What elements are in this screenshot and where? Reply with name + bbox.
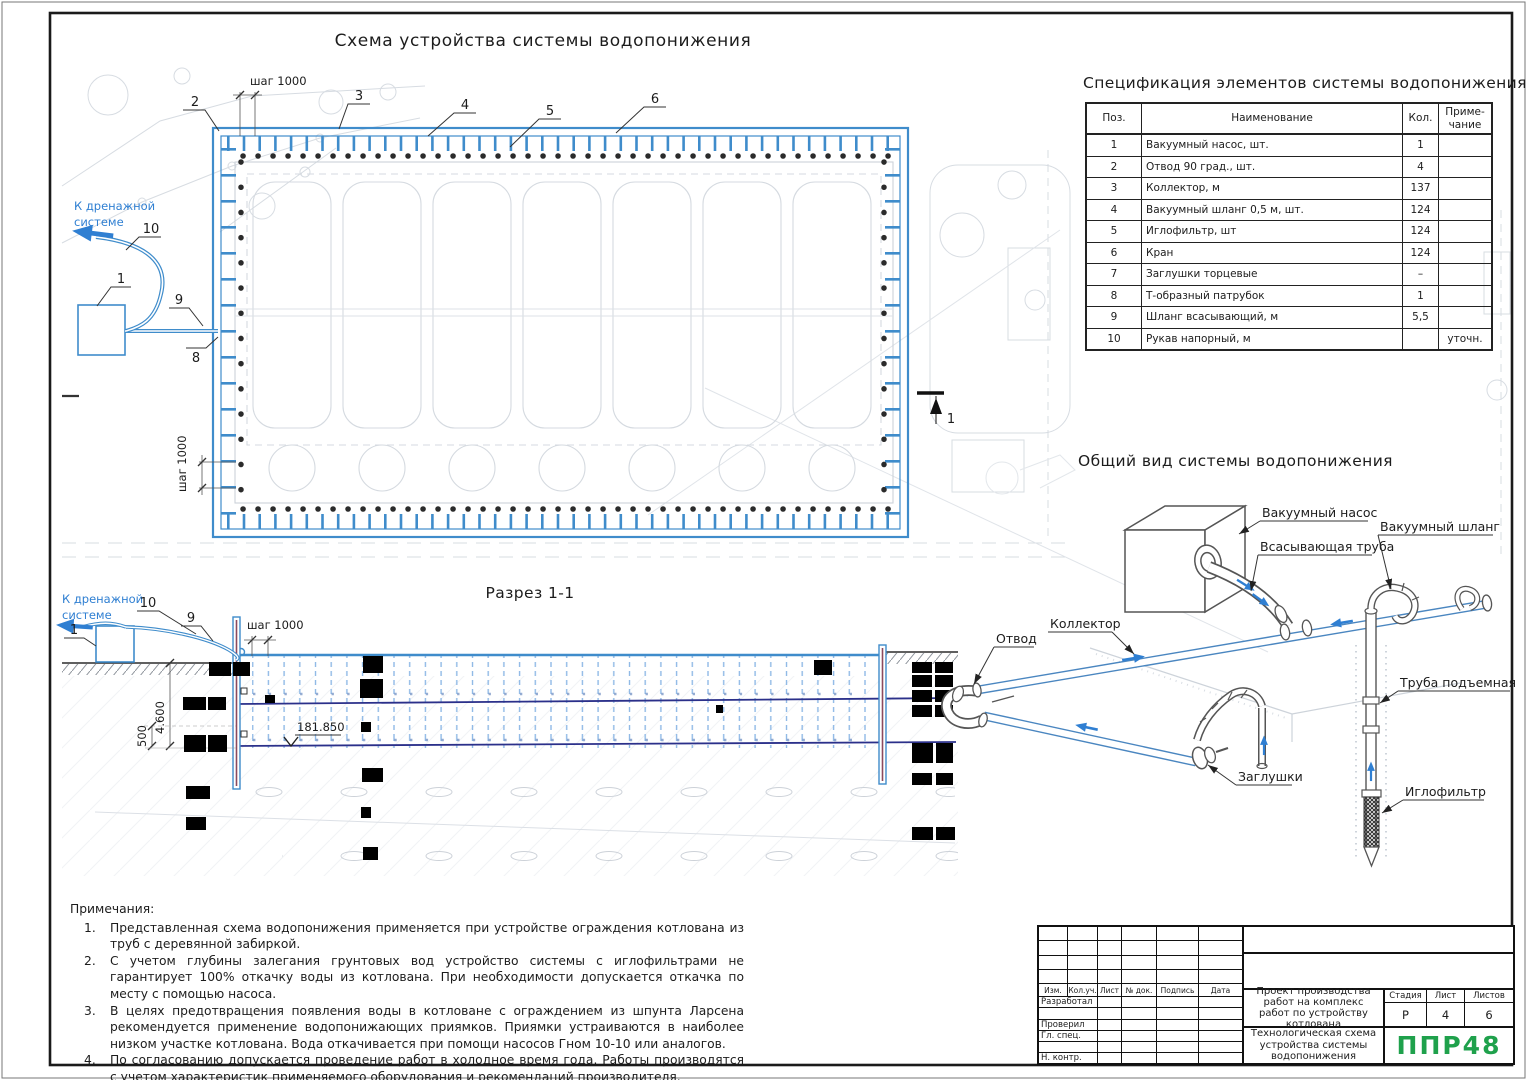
table-row: 10Рукав напорный, муточн. [1086, 328, 1492, 350]
cell-name: Заглушки торцевые [1142, 264, 1403, 286]
row-ncontrol: Н. контр. [1039, 1053, 1098, 1064]
label-otvod: Отвод [996, 631, 1037, 646]
row-checked: Проверил [1039, 1020, 1098, 1031]
plan-callouts: 2 3 4 5 6 9 8 10 1 [97, 89, 666, 366]
sheet-value: 4 [1427, 1003, 1465, 1026]
level-label: 181.850 [297, 720, 345, 734]
col-ndok: № док. [1122, 984, 1157, 996]
cell-name: Отвод 90 град., шт. [1142, 156, 1403, 178]
table-row: 1Вакуумный насос, шт.1 [1086, 134, 1492, 156]
section-step-dim: шаг 1000 [244, 618, 304, 656]
row-chief: Гл. спец. [1039, 1031, 1098, 1042]
note-text: С учетом глубины залегания грунтовых вод… [110, 953, 744, 1003]
note-number: 1. [84, 920, 110, 953]
note-item: 1.Представленная схема водопонижения при… [70, 920, 744, 953]
title-block: Изм. Кол.уч. Лист № док. Подпись Дата Ра… [1037, 925, 1515, 1065]
plan-collector-band [213, 128, 908, 537]
cell-qty: 1 [1403, 134, 1439, 156]
note-item: 3.В целях предотвращения появления воды … [70, 1003, 744, 1053]
plan-title: Схема устройства системы водопонижения [335, 31, 752, 51]
overview-title: Общий вид системы водопонижения [1078, 452, 1393, 470]
table-row: 8Т-образный патрубок1 [1086, 285, 1492, 307]
label-plugs: Заглушки [1238, 769, 1303, 784]
note-number: 4. [84, 1052, 110, 1080]
callout-5: 5 [546, 104, 554, 119]
spec-title: Спецификация элементов системы водопониж… [1083, 74, 1489, 92]
specification: Спецификация элементов системы водопониж… [1083, 74, 1489, 351]
cell-note [1439, 199, 1493, 221]
cell-name: Рукав напорный, м [1142, 328, 1403, 350]
project-name: Проект производства работ на комплекс ра… [1244, 990, 1385, 1026]
label-vacuum-pump: Вакуумный насос [1262, 505, 1378, 520]
label-filter: Иглофильтр [1405, 784, 1486, 799]
cell-name: Шланг всасывающий, м [1142, 307, 1403, 329]
callout-6: 6 [651, 92, 659, 107]
callout-4: 4 [461, 98, 469, 113]
cell-pos: 6 [1086, 242, 1142, 264]
signature-rows: Разработал Проверил Гл. спец. Н. контр. [1039, 997, 1242, 1065]
notes-title: Примечания: [70, 901, 744, 918]
drain-label-line2: системе [62, 608, 112, 622]
cell-name: Иглофильтр, шт [1142, 221, 1403, 243]
drain-label-line1: К дренажной [62, 592, 143, 606]
callout-1: 1 [70, 623, 78, 638]
vacuum-pump-section [96, 626, 134, 662]
col-podpis: Подпись [1157, 984, 1199, 996]
note-number: 2. [84, 953, 110, 1003]
cell-qty: – [1403, 264, 1439, 286]
stage-label: Стадия [1385, 990, 1427, 1002]
section-cut-mark: 1 [917, 393, 955, 427]
col-list: Лист [1098, 984, 1122, 996]
callout-2: 2 [191, 95, 199, 110]
revision-header: Изм. Кол.уч. Лист № док. Подпись Дата [1039, 984, 1242, 997]
spec-table: Поз. Наименование Кол. Приме- чание 1Вак… [1085, 102, 1493, 351]
document-title: Технологическая схема устройства системы… [1244, 1028, 1385, 1063]
sheet-label: Лист [1427, 990, 1465, 1002]
drain-label-line2: системе [74, 215, 124, 229]
plan-step-dim-top: шаг 1000 [233, 74, 307, 136]
cell-name: Коллектор, м [1142, 178, 1403, 200]
label-riser: Труба подъемная [1399, 675, 1516, 690]
note-text: В целях предотвращения появления воды в … [110, 1003, 744, 1053]
plan-pump-assembly: К дренажной системе [62, 199, 218, 396]
step-label: шаг 1000 [175, 435, 189, 492]
overview-3d: Общий вид системы водопонижения [946, 452, 1516, 866]
note-number: 3. [84, 1003, 110, 1053]
col-data: Дата [1199, 984, 1242, 996]
revision-grid [1039, 927, 1242, 984]
table-row: 9Шланг всасывающий, м5,5 [1086, 307, 1492, 329]
sheets-label: Листов [1465, 990, 1513, 1002]
drawing-sheet: Схема устройства системы водопонижения [0, 0, 1527, 1080]
wellpoint-filter [1364, 797, 1379, 847]
cell-pos: 9 [1086, 307, 1142, 329]
section-mark-label: 1 [947, 412, 955, 427]
step-label: шаг 1000 [247, 618, 304, 632]
cell-qty [1403, 328, 1439, 350]
cell-pos: 4 [1086, 199, 1142, 221]
table-row: 6Кран124 [1086, 242, 1492, 264]
cell-pos: 8 [1086, 285, 1142, 307]
note-item: 2.С учетом глубины залегания грунтовых в… [70, 953, 744, 1003]
cell-note [1439, 264, 1493, 286]
cell-qty: 137 [1403, 178, 1439, 200]
company-logo: ППР48 [1385, 1028, 1513, 1063]
title-block-left: Изм. Кол.уч. Лист № док. Подпись Дата Ра… [1039, 927, 1244, 1063]
callout-9: 9 [175, 293, 183, 308]
callout-8: 8 [192, 351, 200, 366]
cell-pos: 3 [1086, 178, 1142, 200]
notes: Примечания: 1.Представленная схема водоп… [70, 901, 744, 1080]
cell-qty: 124 [1403, 221, 1439, 243]
flow-arrows [1074, 576, 1375, 781]
cell-pos: 5 [1086, 221, 1142, 243]
callout-10: 10 [143, 222, 160, 237]
label-suction-pipe: Всасывающая труба [1260, 539, 1394, 554]
cell-note [1439, 178, 1493, 200]
cell-note: уточн. [1439, 328, 1493, 350]
branch-pipe [984, 716, 1196, 762]
row-developed: Разработал [1039, 997, 1098, 1008]
plan-interior-faint [235, 162, 893, 503]
sheets-value: 6 [1465, 1003, 1513, 1026]
plan-view: Схема устройства системы водопонижения [62, 31, 955, 537]
table-row: 4Вакуумный шланг 0,5 м, шт.124 [1086, 199, 1492, 221]
cell-note [1439, 307, 1493, 329]
vacuum-pump-plan [78, 305, 125, 355]
cell-qty: 124 [1403, 242, 1439, 264]
plug [1190, 745, 1228, 770]
col-izm: Изм. [1039, 984, 1068, 996]
label-vacuum-hose: Вакуумный шланг [1380, 519, 1500, 534]
col-koluch: Кол.уч. [1068, 984, 1098, 996]
cell-pos: 7 [1086, 264, 1142, 286]
logo-text: ППР48 [1397, 1031, 1502, 1060]
cell-qty: 124 [1403, 199, 1439, 221]
note-text: По согласованию допускается проведение р… [110, 1052, 744, 1080]
cell-name: Кран [1142, 242, 1403, 264]
vacuum-pump-3d [1125, 506, 1245, 612]
cell-name: Вакуумный насос, шт. [1142, 134, 1403, 156]
cell-pos: 10 [1086, 328, 1142, 350]
table-row: 3Коллектор, м137 [1086, 178, 1492, 200]
step-label: шаг 1000 [250, 74, 307, 88]
offset-dim: 500 [135, 725, 149, 747]
depth-dim: 4.600 [153, 701, 167, 734]
cell-name: Т-образный патрубок [1142, 285, 1403, 307]
section-title: Разрез 1-1 [486, 584, 575, 602]
note-item: 4.По согласованию допускается проведение… [70, 1052, 744, 1080]
spec-header-note: Приме- чание [1439, 103, 1493, 134]
callout-10: 10 [140, 596, 157, 611]
cell-note [1439, 221, 1493, 243]
cell-pos: 1 [1086, 134, 1142, 156]
spec-header-name: Наименование [1142, 103, 1403, 134]
label-collector: Коллектор [1050, 616, 1121, 631]
cell-note [1439, 285, 1493, 307]
table-row: 5Иглофильтр, шт124 [1086, 221, 1492, 243]
cell-name: Вакуумный шланг 0,5 м, шт. [1142, 199, 1403, 221]
callout-9: 9 [187, 611, 195, 626]
callout-3: 3 [355, 89, 363, 104]
title-block-right: Проект производства работ на комплекс ра… [1244, 927, 1513, 1063]
cell-note [1439, 134, 1493, 156]
cell-note [1439, 156, 1493, 178]
cell-qty: 5,5 [1403, 307, 1439, 329]
section-view: Разрез 1-1 [56, 584, 958, 876]
table-row: 7Заглушки торцевые– [1086, 264, 1492, 286]
table-row: 2Отвод 90 град., шт.4 [1086, 156, 1492, 178]
stage-value: Р [1385, 1003, 1427, 1026]
cell-qty: 1 [1403, 285, 1439, 307]
callout-1: 1 [117, 272, 125, 287]
spec-header-pos: Поз. [1086, 103, 1142, 134]
cell-note [1439, 242, 1493, 264]
spec-header-qty: Кол. [1403, 103, 1439, 134]
cell-pos: 2 [1086, 156, 1142, 178]
note-text: Представленная схема водопонижения приме… [110, 920, 744, 953]
drain-label-line1: К дренажной [74, 199, 155, 213]
cell-qty: 4 [1403, 156, 1439, 178]
